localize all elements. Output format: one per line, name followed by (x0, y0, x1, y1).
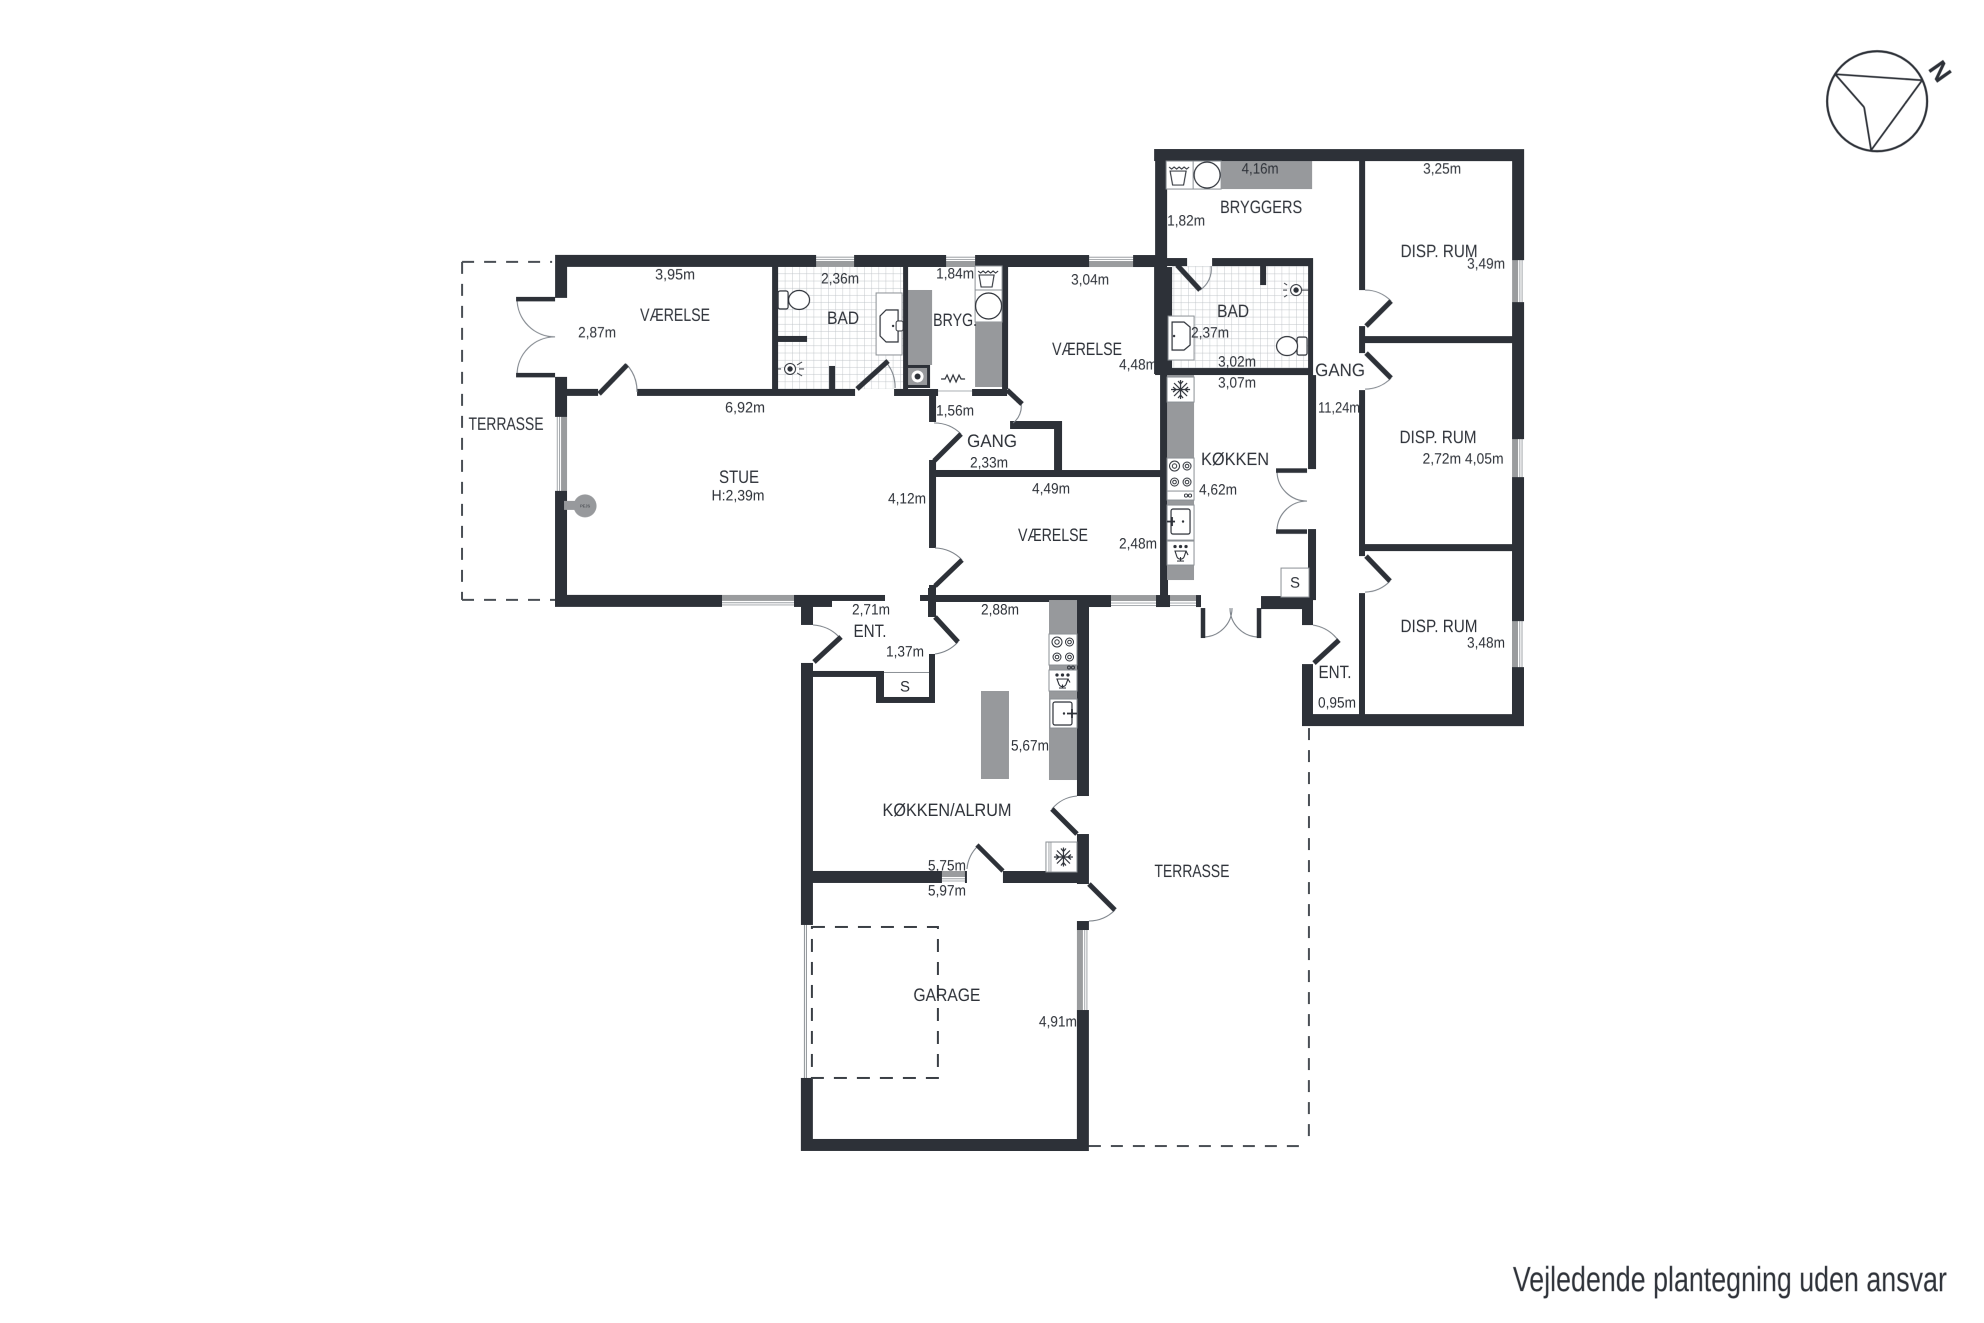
svg-text:BAD: BAD (827, 308, 859, 328)
svg-text:DISP. RUM: DISP. RUM (1401, 616, 1478, 636)
svg-text:VÆRELSE: VÆRELSE (1018, 525, 1088, 545)
svg-text:1,84m: 1,84m (936, 265, 974, 282)
svg-text:BRYG.: BRYG. (933, 310, 977, 330)
svg-text:DISP. RUM: DISP. RUM (1400, 427, 1477, 447)
svg-text:ENT.: ENT. (1318, 662, 1351, 682)
svg-text:2,88m: 2,88m (981, 601, 1019, 618)
svg-text:3,49m: 3,49m (1467, 256, 1505, 273)
svg-text:2,72m 4,05m: 2,72m 4,05m (1423, 451, 1504, 468)
svg-text:DISP. RUM: DISP. RUM (1401, 241, 1478, 261)
svg-text:S: S (1290, 575, 1300, 592)
svg-text:GARAGE: GARAGE (913, 985, 980, 1005)
svg-text:0,95m: 0,95m (1318, 695, 1356, 712)
svg-text:4,91m: 4,91m (1039, 1014, 1077, 1031)
svg-text:GANG: GANG (1315, 360, 1365, 380)
svg-text:PEJS: PEJS (580, 503, 590, 508)
svg-text:3,48m: 3,48m (1467, 635, 1505, 652)
svg-text:BAD: BAD (1217, 301, 1249, 321)
svg-text:1,82m: 1,82m (1167, 213, 1205, 230)
svg-text:2,33m: 2,33m (970, 454, 1008, 471)
svg-text:3,02m: 3,02m (1218, 354, 1256, 371)
svg-text:3,95m: 3,95m (655, 266, 695, 283)
svg-text:STUE: STUE (719, 467, 759, 487)
svg-text:GANG: GANG (967, 431, 1017, 451)
svg-text:2,36m: 2,36m (821, 270, 859, 287)
svg-text:KØKKEN: KØKKEN (1201, 449, 1269, 469)
svg-text:5,97m: 5,97m (928, 882, 966, 899)
svg-text:4,12m: 4,12m (888, 490, 926, 507)
svg-text:1,37m: 1,37m (886, 643, 924, 660)
svg-text:4,62m: 4,62m (1199, 482, 1237, 499)
svg-text:4,16m: 4,16m (1242, 161, 1279, 178)
svg-text:1,56m: 1,56m (936, 402, 974, 419)
svg-text:2,37m: 2,37m (1191, 325, 1229, 342)
svg-text:2,71m: 2,71m (852, 601, 890, 618)
svg-text:Vejledende plantegning uden an: Vejledende plantegning uden ansvar (1513, 1260, 1947, 1299)
svg-text:H:2,39m: H:2,39m (712, 487, 765, 504)
svg-text:5,67m: 5,67m (1011, 738, 1049, 755)
svg-text:4,48m: 4,48m (1119, 357, 1157, 374)
svg-text:VÆRELSE: VÆRELSE (640, 305, 710, 325)
svg-text:3,07m: 3,07m (1218, 375, 1256, 392)
svg-text:TERRASSE: TERRASSE (469, 414, 544, 434)
svg-text:6,92m: 6,92m (725, 399, 765, 416)
svg-text:3,25m: 3,25m (1423, 161, 1461, 178)
svg-text:2,48m: 2,48m (1119, 536, 1157, 553)
svg-text:3,04m: 3,04m (1071, 272, 1109, 289)
svg-text:4,49m: 4,49m (1032, 481, 1070, 498)
svg-text:TERRASSE: TERRASSE (1154, 861, 1229, 881)
svg-text:S: S (900, 678, 910, 695)
svg-text:11,24m: 11,24m (1318, 400, 1360, 417)
svg-text:VÆRELSE: VÆRELSE (1052, 339, 1122, 359)
svg-text:BRYGGERS: BRYGGERS (1220, 197, 1302, 217)
svg-text:ENT.: ENT. (854, 621, 887, 641)
svg-text:KØKKEN/ALRUM: KØKKEN/ALRUM (882, 800, 1011, 820)
svg-text:2,87m: 2,87m (578, 324, 616, 341)
svg-text:5,75m: 5,75m (928, 857, 966, 874)
